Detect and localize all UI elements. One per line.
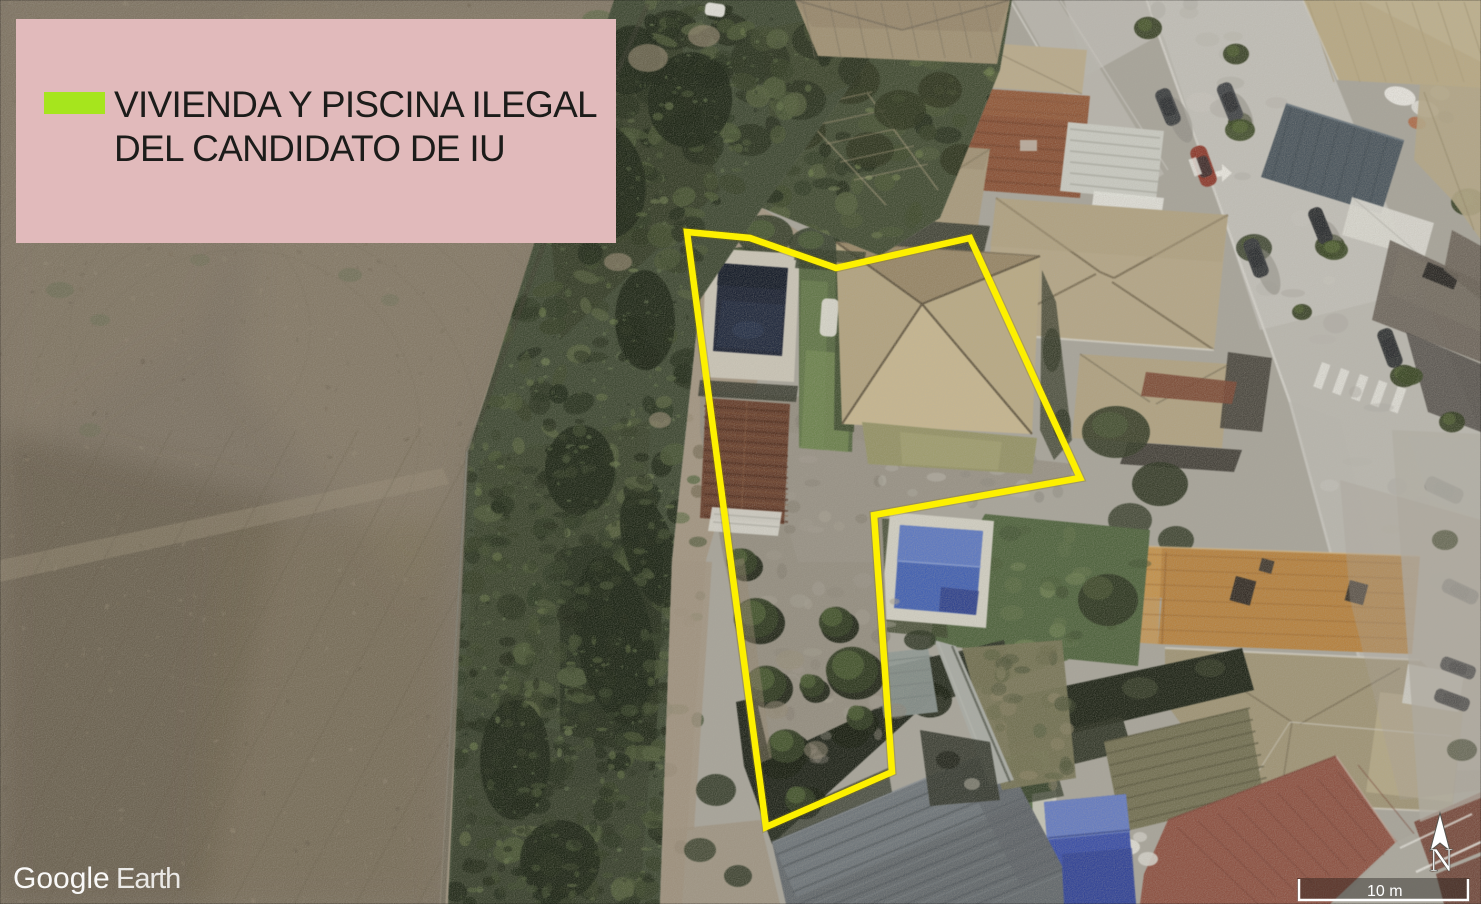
svg-text:VIVIENDA Y PISCINA ILEGAL: VIVIENDA Y PISCINA ILEGAL (114, 84, 597, 125)
svg-text:N: N (1429, 842, 1454, 879)
svg-text:Google: Google (13, 862, 110, 895)
svg-text:Earth: Earth (116, 863, 180, 895)
svg-text:DEL CANDIDATO DE IU: DEL CANDIDATO DE IU (114, 128, 505, 169)
svg-text:10 m: 10 m (1367, 883, 1403, 900)
